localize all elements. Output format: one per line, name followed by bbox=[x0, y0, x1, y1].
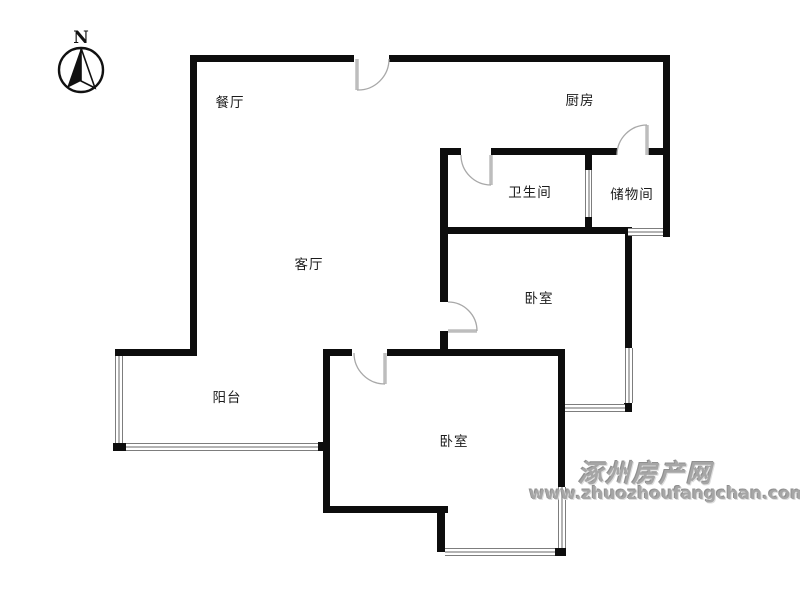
bedroom-east-door-arc bbox=[448, 302, 477, 331]
floor-plan: 餐厅厨房卫生间储物间客厅卧室阳台卧室 N 涿州房产网 www.zhuozhouf… bbox=[0, 0, 800, 600]
north-compass-icon: N bbox=[55, 24, 111, 100]
compass-needle-dark bbox=[67, 48, 81, 88]
bathroom-door-arc bbox=[461, 155, 491, 185]
entry-door-arc bbox=[357, 59, 389, 90]
bedroom-south-door-arc bbox=[354, 353, 385, 384]
compass-north-label: N bbox=[73, 28, 89, 48]
doors-layer bbox=[0, 0, 800, 600]
storage-door-arc bbox=[617, 125, 647, 155]
compass-needle-light bbox=[81, 48, 95, 88]
watermark-site-url: www.zhuozhoufangchan.com bbox=[529, 484, 800, 504]
